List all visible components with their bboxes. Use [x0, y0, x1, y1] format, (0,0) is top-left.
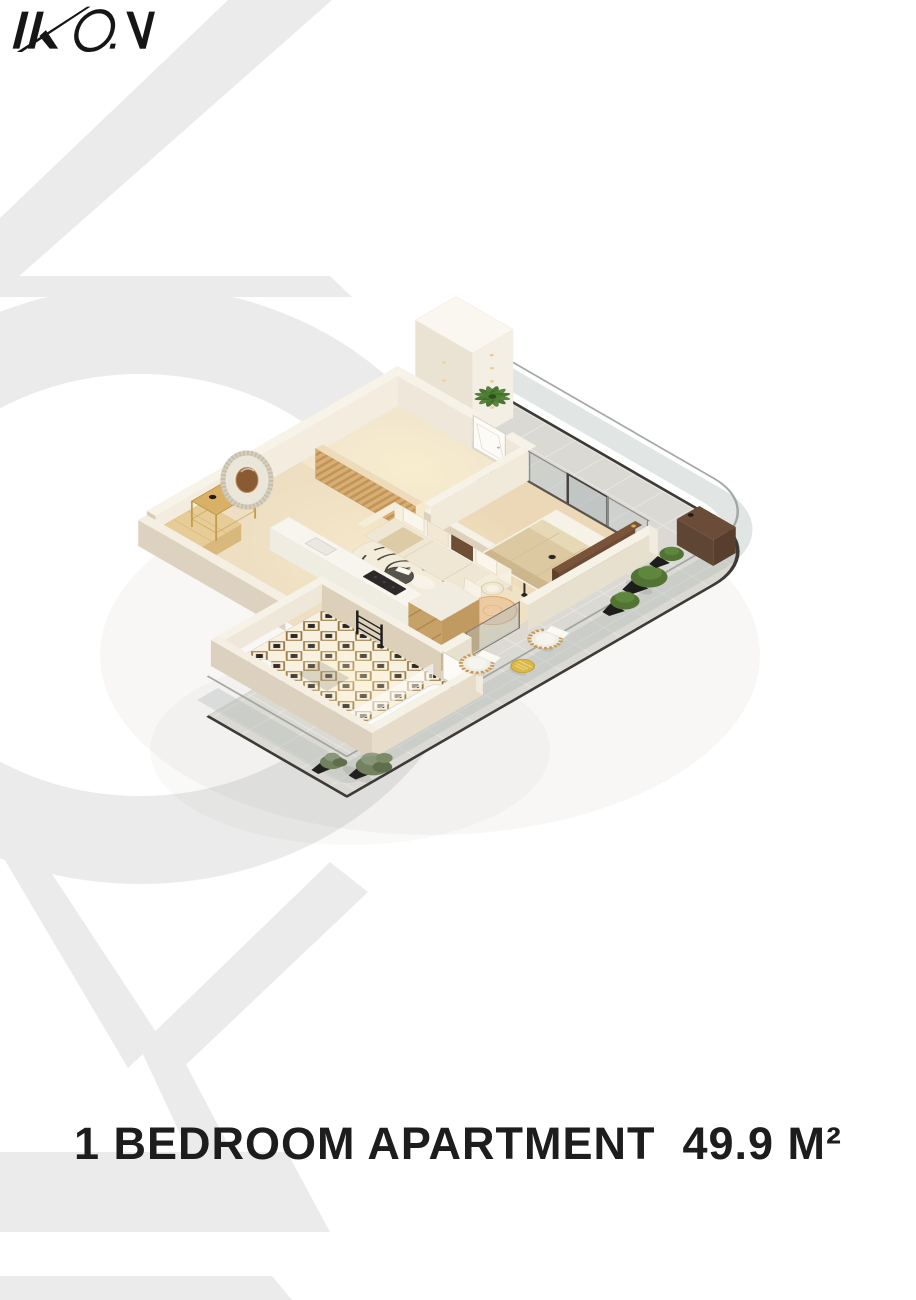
- wall-mirror: [223, 453, 271, 507]
- watermark-band-2: [0, 1276, 292, 1300]
- logo-letter-n-bar: [140, 12, 155, 49]
- brochure-page: 1 BEDROOM APARTMENT 49.9 M²: [0, 0, 916, 1300]
- logo-letter-o: [72, 11, 117, 50]
- ikon-logo: [0, 0, 160, 62]
- page-title: 1 BEDROOM APARTMENT 49.9 M²: [0, 1118, 916, 1170]
- logo-dot: [110, 44, 116, 49]
- logo-letter-k-stem: [28, 12, 44, 49]
- logo-letter-i: [13, 12, 29, 49]
- scene: [0, 0, 916, 1300]
